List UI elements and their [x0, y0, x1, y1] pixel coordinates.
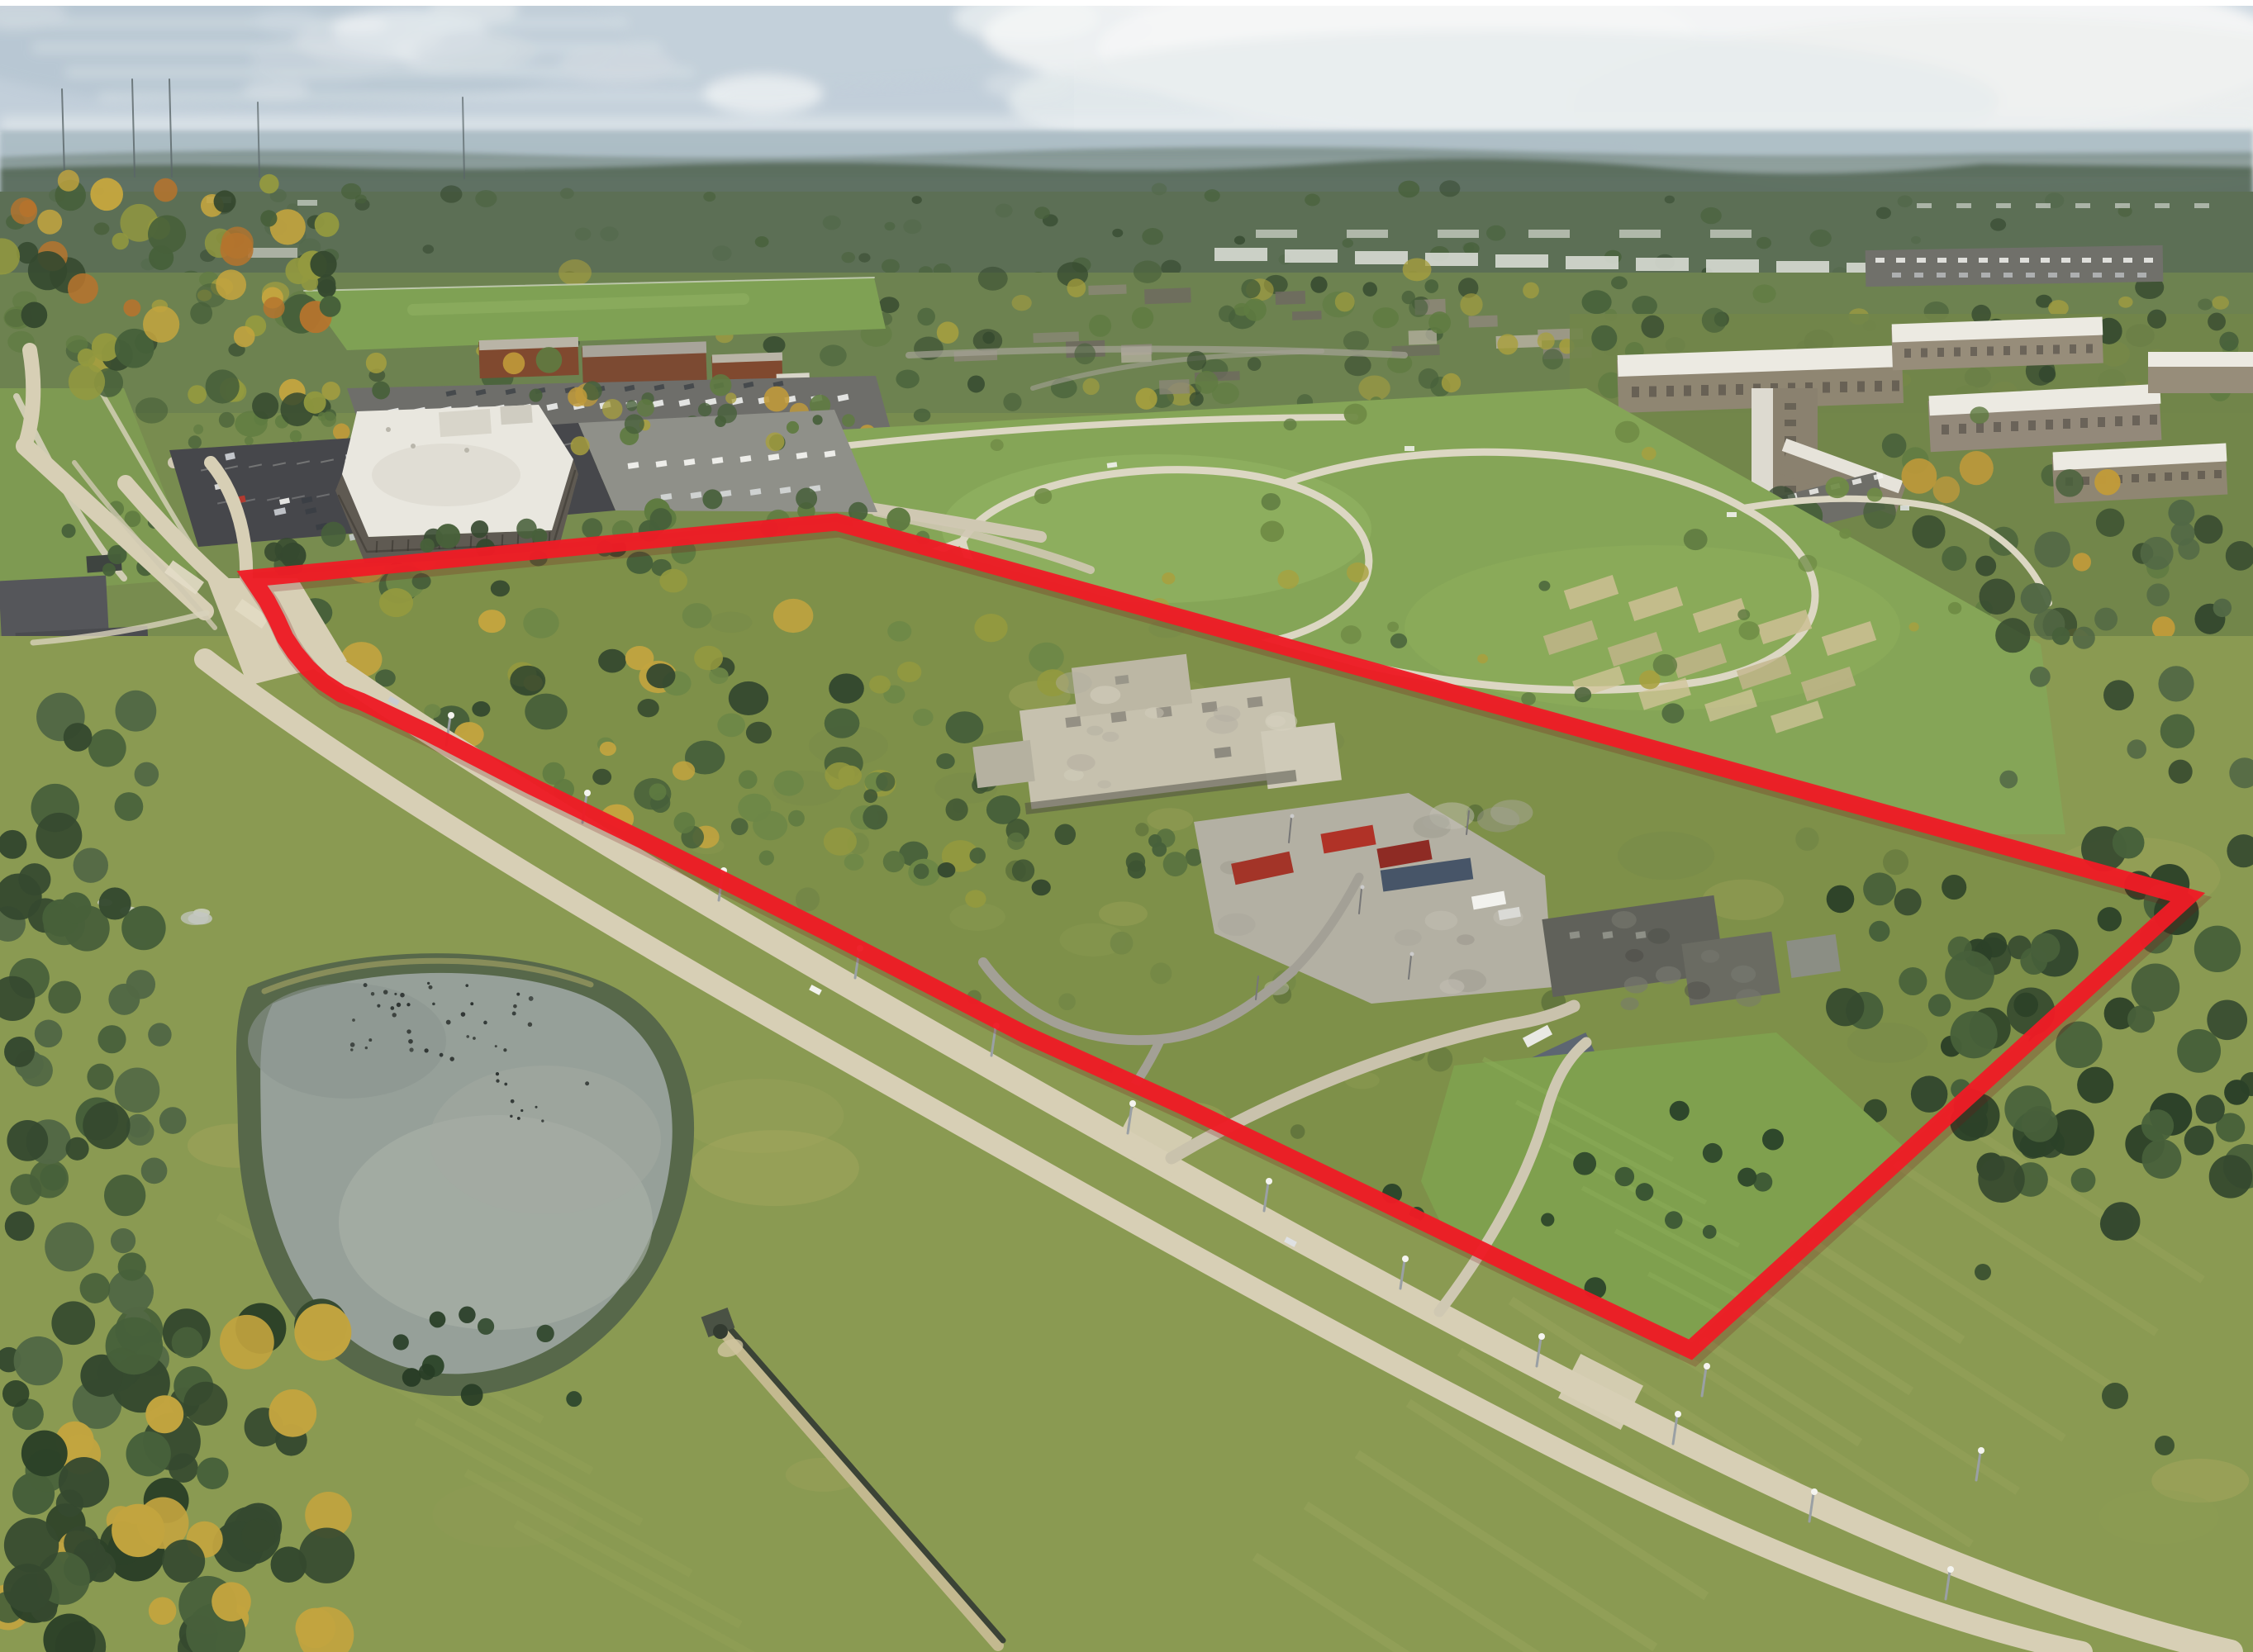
aerial-site-photo: [0, 0, 2253, 1652]
top-border: [0, 0, 2253, 6]
aerial-photo-canvas: [0, 0, 2253, 1652]
